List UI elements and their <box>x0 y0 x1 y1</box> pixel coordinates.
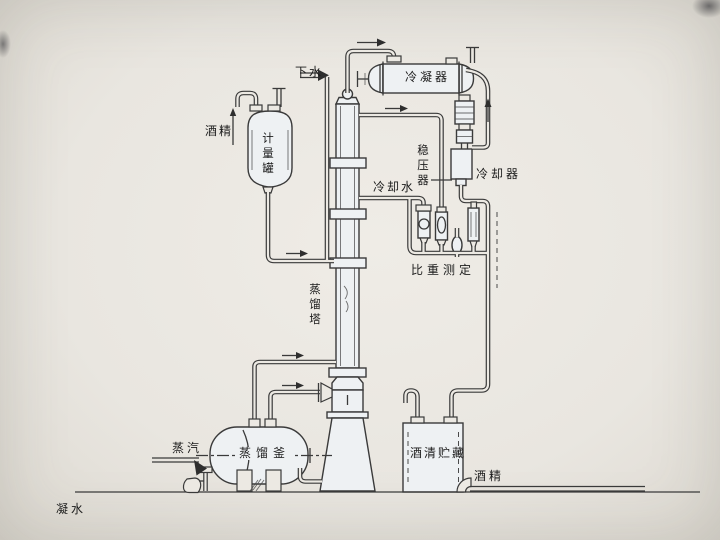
label-distillation-column: 蒸馏塔 <box>308 282 322 327</box>
label-pressure-stabilizer: 稳压器 <box>416 143 430 188</box>
flow-arrow-overhead <box>357 39 386 47</box>
label-alcohol-out: 酒精 <box>474 470 504 483</box>
scanned-process-diagram: 下水 冷凝器 酒精 计量罐 稳压器 冷却水 冷却器 比重测定 蒸馏塔 蒸馏釜 蒸… <box>0 0 720 540</box>
flow-arrow-feed <box>286 250 308 257</box>
label-alcohol-in: 酒精 <box>205 125 233 138</box>
flow-arrow-riser-lower <box>282 382 304 389</box>
cooler-box <box>451 149 472 179</box>
label-metering-tank: 计量罐 <box>261 131 275 176</box>
flow-arrow-coolant-up <box>485 99 492 123</box>
label-drain-water: 下水 <box>295 66 323 79</box>
label-gravity-measurement: 比重测定 <box>411 264 475 277</box>
label-condenser: 冷凝器 <box>405 71 450 84</box>
flow-arrow-riser-upper <box>282 352 304 359</box>
steam-trap <box>183 478 200 493</box>
distillation-flow-diagram <box>0 0 720 540</box>
reducer-stack-and-cooler <box>451 95 474 186</box>
column-skirt <box>320 418 375 491</box>
label-condensate-water: 凝水 <box>56 503 86 516</box>
label-alcohol-storage: 酒清贮藏 <box>410 447 466 460</box>
label-steam: 蒸汽 <box>172 442 202 455</box>
label-distillation-kettle: 蒸馏釜 <box>237 447 292 460</box>
label-cooling-water: 冷却水 <box>373 181 415 194</box>
label-cooler: 冷却器 <box>476 168 521 181</box>
flow-arrow-to-stabilizer <box>385 105 408 112</box>
